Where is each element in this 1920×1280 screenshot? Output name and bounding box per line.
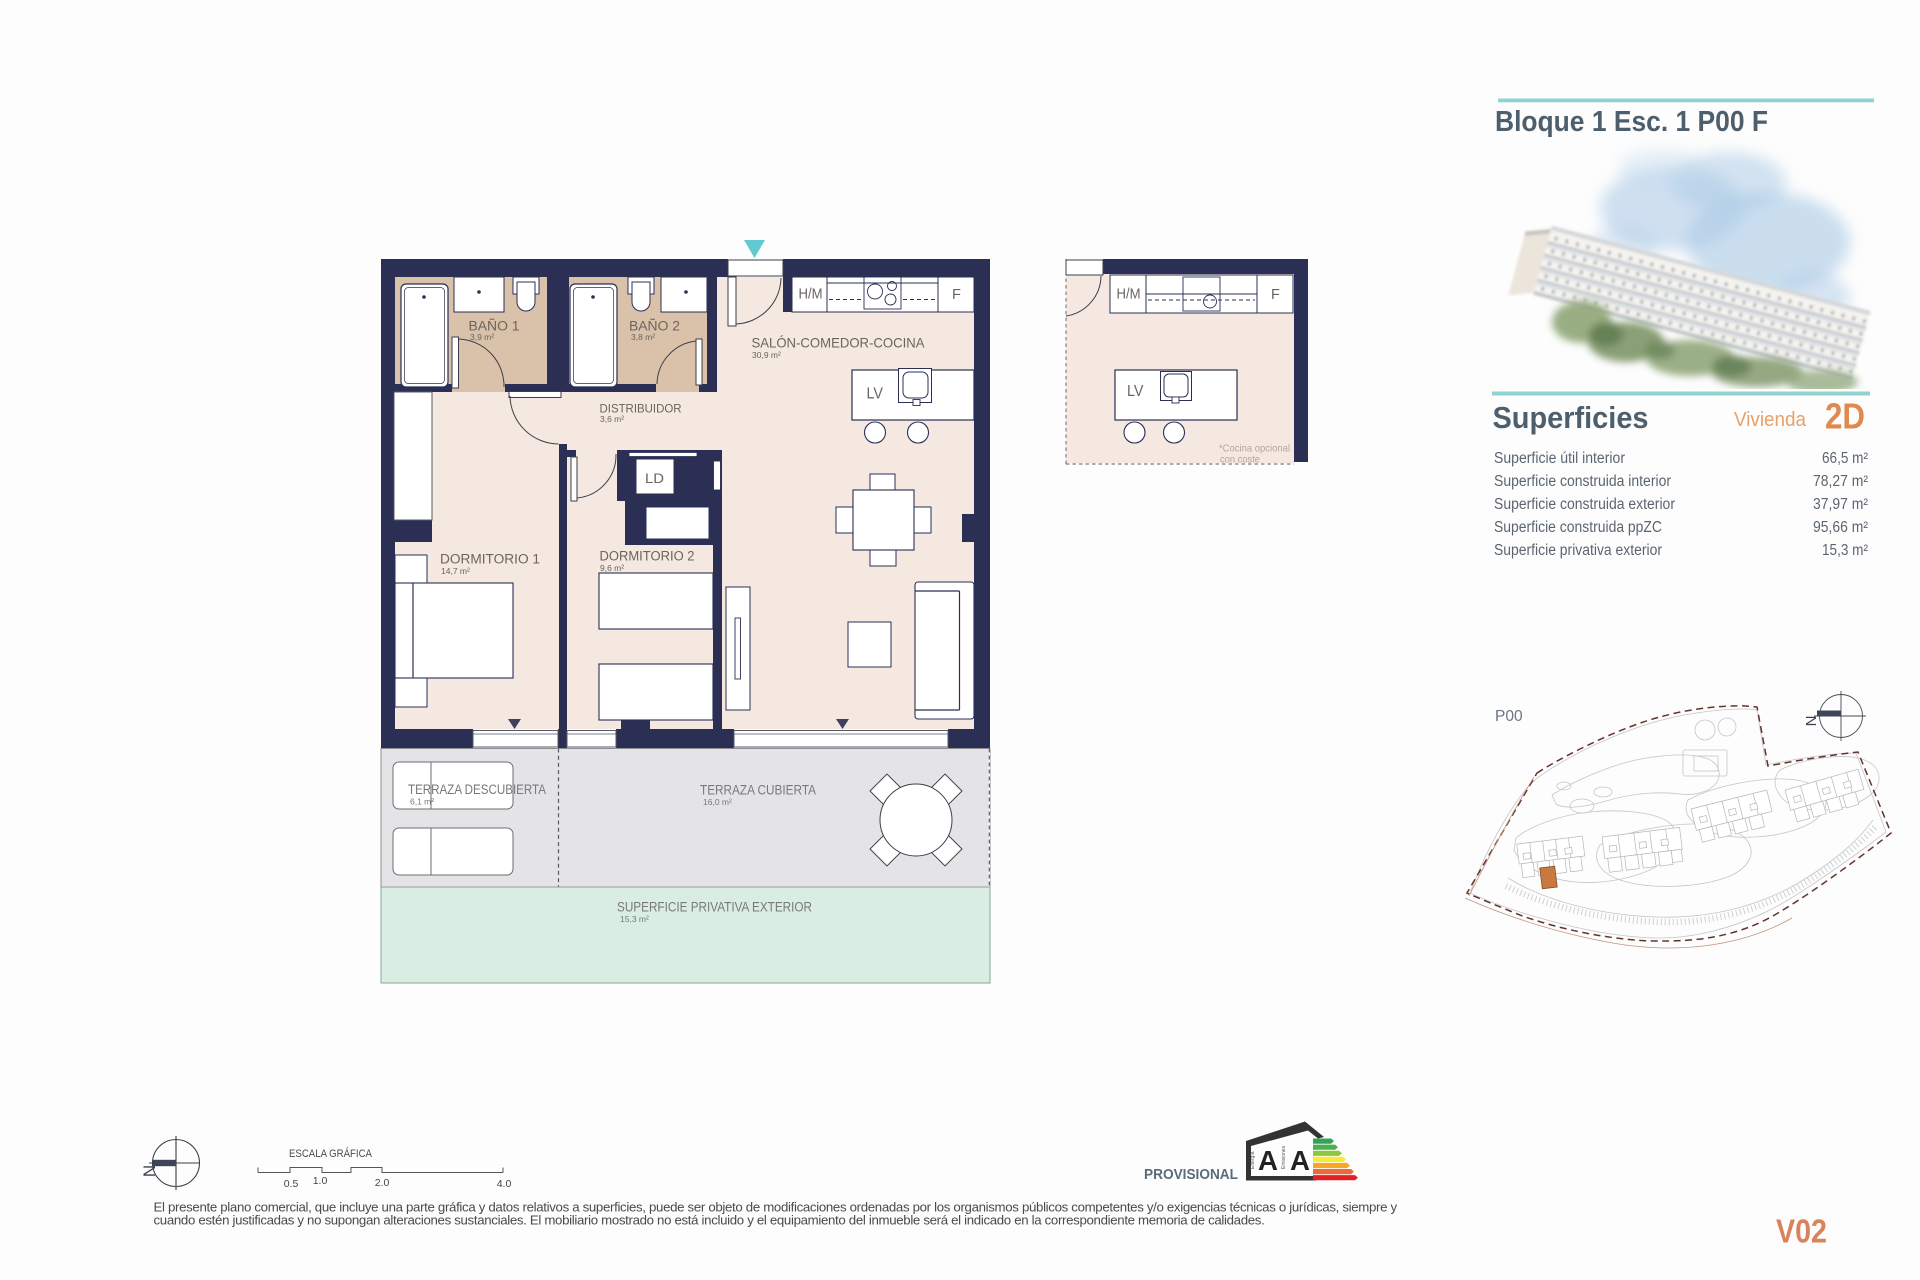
svg-text:3,8 m²: 3,8 m² [631,332,655,342]
svg-text:P00: P00 [1495,708,1523,725]
svg-text:6,1 m²: 6,1 m² [410,797,434,807]
svg-text:F: F [1271,287,1280,303]
svg-text:PROVISIONAL: PROVISIONAL [1144,1167,1238,1183]
svg-text:Vivienda: Vivienda [1734,408,1807,431]
svg-text:Superficie construida interior: Superficie construida interior [1494,473,1671,490]
svg-text:3,6 m²: 3,6 m² [600,414,624,424]
svg-text:N: N [1803,716,1820,727]
svg-text:cuando estén justificadas y no: cuando estén justificadas y no supongan … [154,1213,1265,1228]
svg-text:2D: 2D [1825,396,1865,437]
svg-text:0.5: 0.5 [284,1178,299,1190]
svg-text:ESCALA GRÁFICA: ESCALA GRÁFICA [289,1147,373,1160]
svg-text:TERRAZA DESCUBIERTA: TERRAZA DESCUBIERTA [408,782,546,797]
svg-text:Energía: Energía [1250,1151,1256,1169]
svg-text:Bloque 1 Esc. 1 P00 F: Bloque 1 Esc. 1 P00 F [1495,106,1768,138]
svg-text:N: N [140,1165,159,1177]
svg-text:SALÓN-COMEDOR-COCINA: SALÓN-COMEDOR-COCINA [752,335,926,351]
svg-text:Superficie privativa exterior: Superficie privativa exterior [1494,542,1662,559]
svg-text:DORMITORIO 1: DORMITORIO 1 [440,552,540,567]
svg-text:30,9 m²: 30,9 m² [752,350,781,360]
svg-text:A: A [1258,1145,1278,1176]
svg-text:DORMITORIO 2: DORMITORIO 2 [600,549,695,564]
svg-text:F: F [952,287,961,303]
svg-text:37,97 m²: 37,97 m² [1813,496,1868,513]
svg-text:4.0: 4.0 [497,1178,512,1190]
svg-text:Superficie construida exterior: Superficie construida exterior [1494,496,1675,513]
svg-text:78,27 m²: 78,27 m² [1813,473,1868,490]
svg-text:Superficie construida ppZC: Superficie construida ppZC [1494,519,1662,536]
svg-text:A: A [1290,1145,1310,1176]
svg-text:9,6 m²: 9,6 m² [600,563,624,573]
svg-text:Superficie útil interior: Superficie útil interior [1494,450,1625,467]
svg-text:TERRAZA CUBIERTA: TERRAZA CUBIERTA [700,783,816,798]
svg-text:3,9 m²: 3,9 m² [470,332,494,342]
svg-text:14,7 m²: 14,7 m² [441,566,470,576]
svg-text:95,66 m²: 95,66 m² [1813,519,1868,536]
svg-text:Emisiones: Emisiones [1281,1145,1287,1169]
svg-text:V02: V02 [1776,1213,1827,1250]
svg-text:H/M: H/M [1117,287,1141,303]
svg-text:Superficies: Superficies [1493,400,1649,435]
svg-text:2.0: 2.0 [375,1177,390,1189]
svg-text:LD: LD [645,470,664,486]
svg-text:1.0: 1.0 [313,1175,328,1187]
svg-text:LV: LV [867,386,884,403]
svg-text:66,5 m²: 66,5 m² [1822,450,1868,467]
svg-text:SUPERFICIE PRIVATIVA EXTERIOR: SUPERFICIE PRIVATIVA EXTERIOR [617,900,812,915]
svg-text:LV: LV [1127,383,1144,400]
svg-text:H/M: H/M [799,287,823,303]
svg-text:con coste: con coste [1220,454,1260,466]
svg-text:15,3 m²: 15,3 m² [1822,542,1868,559]
svg-text:15,3 m²: 15,3 m² [620,914,649,924]
svg-text:16,0 m²: 16,0 m² [703,797,732,807]
